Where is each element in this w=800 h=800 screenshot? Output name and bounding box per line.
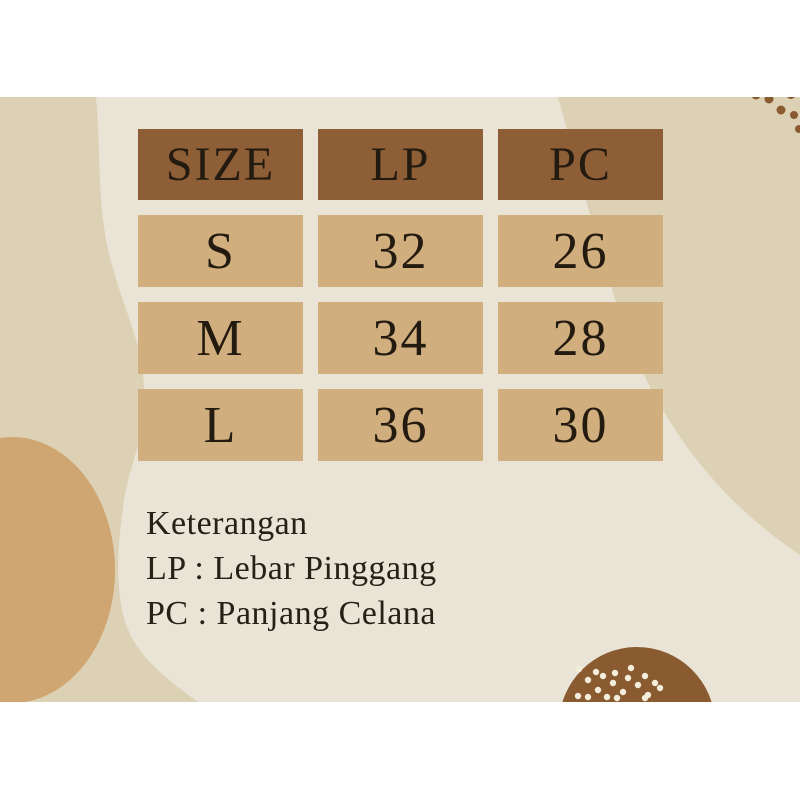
dotted-circle [559,647,715,702]
legend-item-lp: LP : Lebar Pinggang [146,546,437,591]
cell-lp-s: 32 [318,215,483,287]
legend-item-pc: PC : Panjang Celana [146,591,437,636]
artboard: SIZE LP PC S 32 26 M 34 28 L 36 30 Keter… [0,97,800,702]
header-cell-size: SIZE [138,129,303,200]
cell-lp-m: 34 [318,302,483,374]
cell-pc-l: 30 [498,389,663,461]
size-table: SIZE LP PC S 32 26 M 34 28 L 36 30 [138,129,663,461]
header-cell-lp: LP [318,129,483,200]
size-chart-graphic: SIZE LP PC S 32 26 M 34 28 L 36 30 Keter… [0,0,800,800]
legend: Keterangan LP : Lebar Pinggang PC : Panj… [146,501,437,636]
cell-size-l: L [138,389,303,461]
cell-size-m: M [138,302,303,374]
cell-lp-l: 36 [318,389,483,461]
legend-title: Keterangan [146,501,437,546]
cell-pc-s: 26 [498,215,663,287]
cell-pc-m: 28 [498,302,663,374]
letterbox-top [0,0,800,97]
cell-size-s: S [138,215,303,287]
letterbox-bottom [0,702,800,800]
header-cell-pc: PC [498,129,663,200]
